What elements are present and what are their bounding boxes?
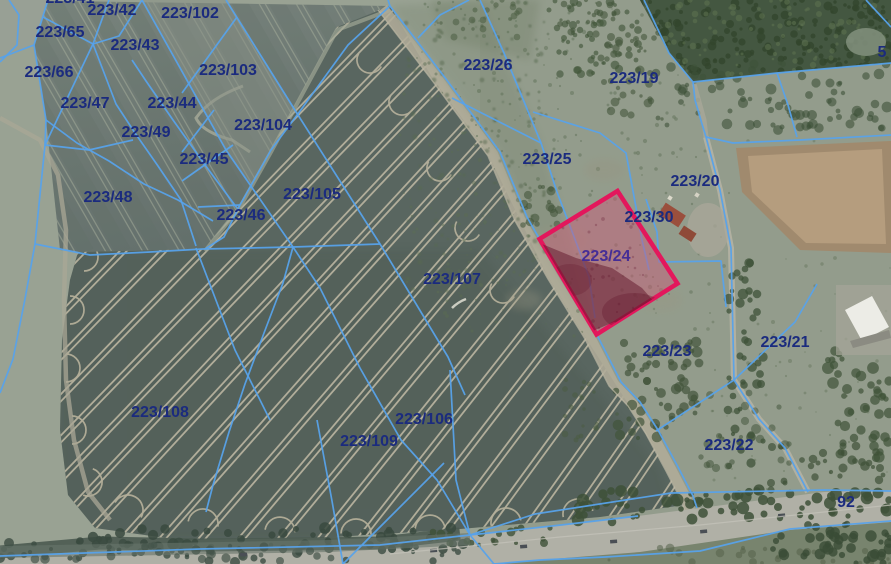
- svg-text:223/66: 223/66: [25, 64, 74, 81]
- svg-text:223/109: 223/109: [340, 433, 398, 450]
- svg-text:223/103: 223/103: [199, 62, 257, 79]
- svg-text:223/105: 223/105: [283, 186, 341, 203]
- svg-text:223/49: 223/49: [122, 124, 171, 141]
- svg-text:223/108: 223/108: [131, 404, 189, 421]
- svg-text:223/22: 223/22: [705, 437, 754, 454]
- svg-text:223/48: 223/48: [84, 189, 133, 206]
- svg-text:223/30: 223/30: [625, 209, 674, 226]
- svg-text:223/19: 223/19: [610, 70, 659, 87]
- svg-text:223/20: 223/20: [671, 173, 720, 190]
- svg-text:223/102: 223/102: [161, 5, 219, 22]
- svg-text:223/42: 223/42: [88, 2, 137, 19]
- svg-text:223/107: 223/107: [423, 271, 481, 288]
- svg-text:223/26: 223/26: [464, 57, 513, 74]
- svg-text:223/44: 223/44: [148, 95, 197, 112]
- svg-text:223/65: 223/65: [36, 24, 85, 41]
- svg-text:223/23: 223/23: [643, 343, 692, 360]
- svg-text:223/45: 223/45: [180, 151, 229, 168]
- svg-text:92: 92: [837, 494, 855, 511]
- svg-text:223/46: 223/46: [217, 207, 266, 224]
- svg-text:223/25: 223/25: [523, 151, 572, 168]
- svg-text:223/24: 223/24: [582, 248, 631, 265]
- svg-text:5: 5: [878, 44, 887, 61]
- svg-text:223/106: 223/106: [395, 411, 453, 428]
- svg-text:223/104: 223/104: [234, 117, 292, 134]
- svg-text:223/41: 223/41: [46, 0, 95, 7]
- svg-text:223/47: 223/47: [61, 95, 110, 112]
- svg-text:223/21: 223/21: [761, 334, 810, 351]
- svg-text:223/43: 223/43: [111, 37, 160, 54]
